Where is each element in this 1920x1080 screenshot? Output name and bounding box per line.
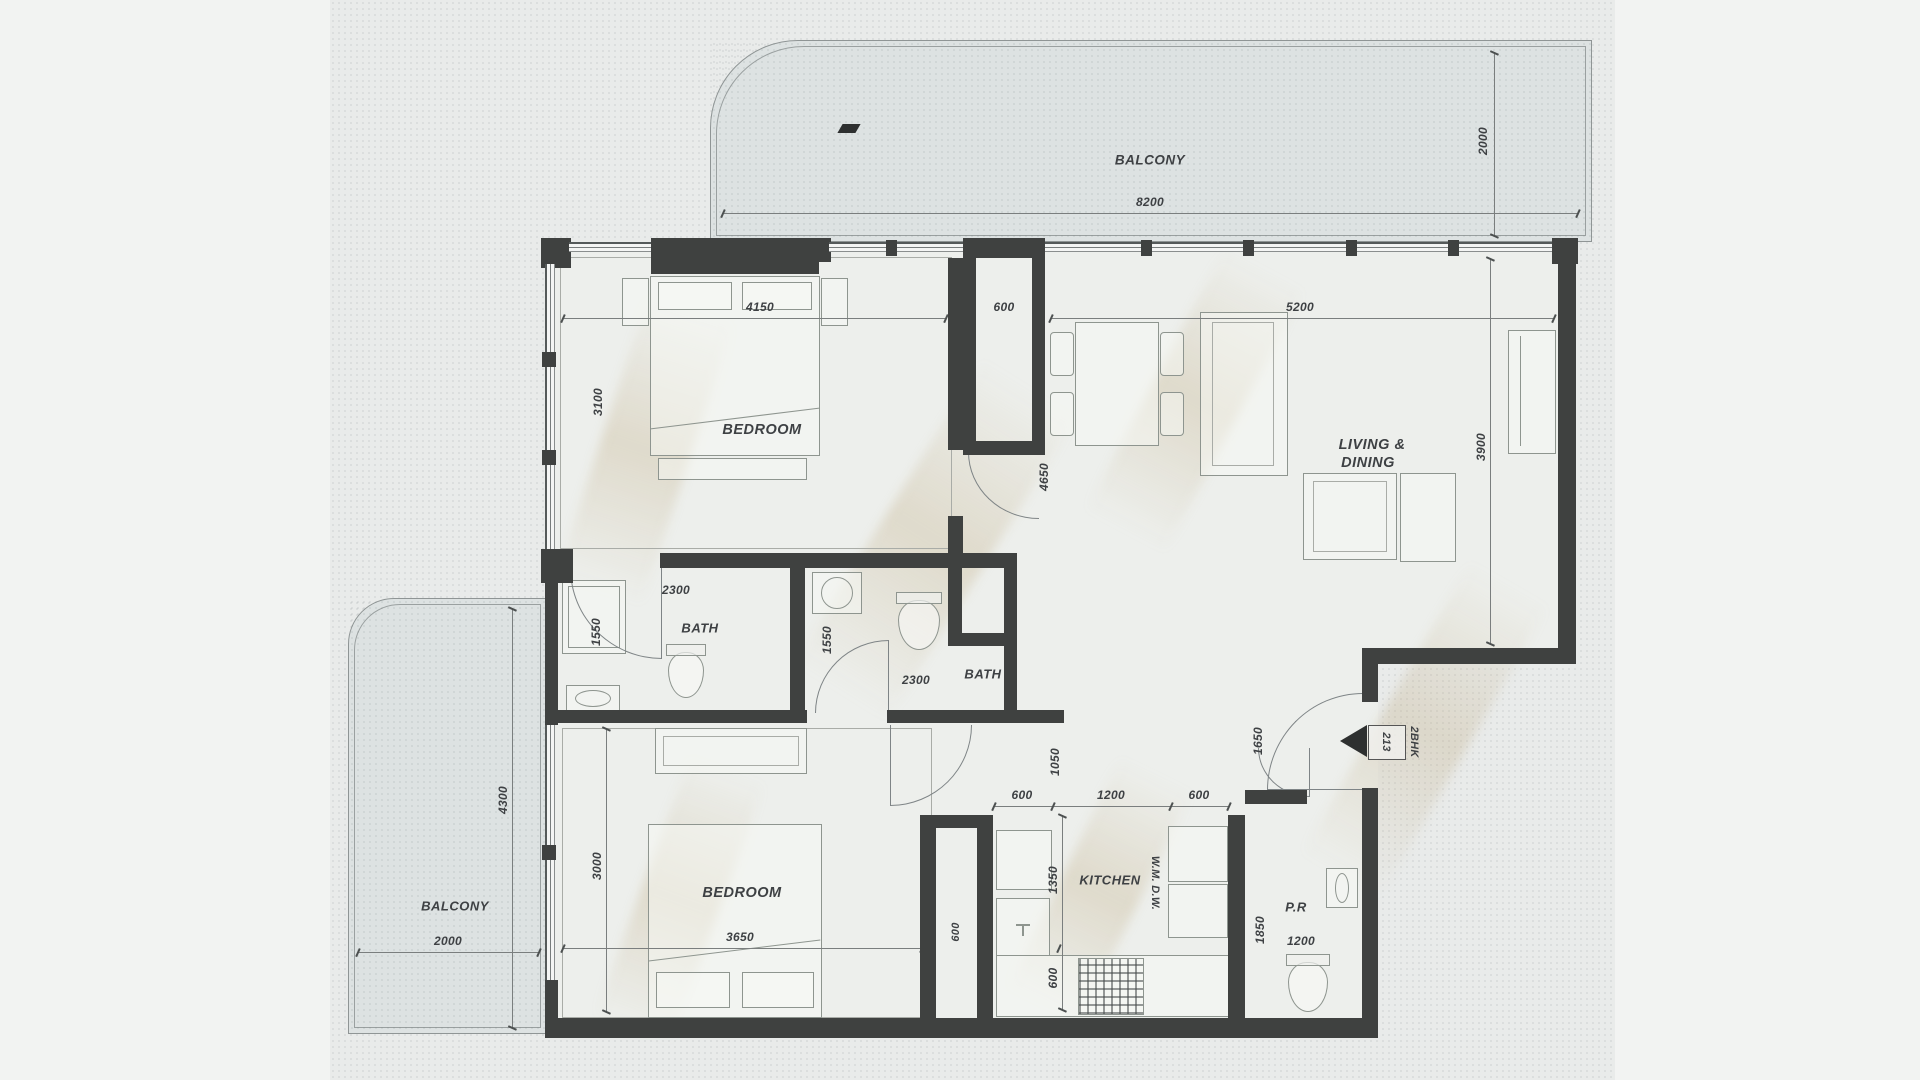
balcony-left-width-dim: 2000 xyxy=(434,934,462,948)
kitchen-hob-dim: 600 xyxy=(1046,968,1060,989)
sofa-cushion-line xyxy=(1212,322,1274,466)
living-depth-dim-line xyxy=(1490,258,1491,644)
kitchen-dim-600-left: 600 xyxy=(1012,788,1033,802)
dining-chair xyxy=(1160,332,1184,376)
kitchen-label: KITCHEN xyxy=(1079,873,1140,888)
balcony-left-length-dim: 4300 xyxy=(496,786,510,814)
wall-bath-left-n-a xyxy=(545,553,570,568)
bedroom-top-dim-line xyxy=(562,318,946,319)
bedroom-bottom-label: BEDROOM xyxy=(702,885,781,901)
dining-chair xyxy=(1050,332,1074,376)
pillow xyxy=(656,972,730,1008)
wall-right-lower-a xyxy=(1362,664,1378,702)
duct-top-wall-s xyxy=(963,441,1045,455)
wall-left-bath xyxy=(545,583,558,725)
wall-bath-mid-n xyxy=(805,553,1017,568)
balcony-left-length-dim-line xyxy=(512,608,513,1028)
wall-bath-mid-stub-h xyxy=(962,633,1017,646)
dining-chair xyxy=(1160,392,1184,436)
wall-bath-mid-stub-v xyxy=(948,568,962,646)
entry-arrow xyxy=(1340,725,1367,757)
wall-bath-mid-s xyxy=(887,710,1017,723)
window-mullion xyxy=(1141,240,1152,256)
pr-sink xyxy=(1326,868,1358,908)
window-mullion xyxy=(542,450,556,465)
duct-top-wall-e xyxy=(1032,258,1045,455)
balcony-top-dim-line xyxy=(722,213,1578,214)
balcony-top xyxy=(710,40,1592,242)
wall-bottom xyxy=(545,1018,1378,1038)
kitchen-dim-600-right: 600 xyxy=(1189,788,1210,802)
pr-label: P.R xyxy=(1285,900,1307,915)
duct-bottom-dim: 600 xyxy=(950,922,962,941)
wardrobe-inner xyxy=(663,736,799,766)
bedroom-top-width-dim: 4150 xyxy=(746,300,774,314)
window-mullion xyxy=(1243,240,1254,256)
wall-bath-left-s xyxy=(545,710,807,723)
unit-number: 213 xyxy=(1380,732,1392,751)
wall-hall-stub xyxy=(1004,710,1064,723)
bedroom-bottom-depth-dim: 3000 xyxy=(590,852,604,880)
pr-width-dim: 1200 xyxy=(1287,934,1315,948)
kitchen-depth-dim: 1350 xyxy=(1046,866,1060,894)
bath-middle-toilet-tank xyxy=(896,592,942,604)
window-bedroom-top-a xyxy=(569,242,653,252)
duct-top-dim: 600 xyxy=(994,300,1015,314)
tv-console xyxy=(1508,330,1556,454)
wall-between-baths xyxy=(790,553,805,723)
bath-left-depth-dim: 1550 xyxy=(589,618,603,646)
window-mullion xyxy=(542,845,556,860)
pr-depth-dim: 1850 xyxy=(1253,916,1267,944)
bath-middle-depth-dim: 1550 xyxy=(820,626,834,654)
balcony-top-width-dim: 8200 xyxy=(1136,195,1164,209)
balcony-left xyxy=(348,598,547,1034)
balcony-top-label: BALCONY xyxy=(1115,153,1185,168)
bed-bench xyxy=(658,458,807,480)
coffee-table-inner xyxy=(1313,481,1387,552)
window-bedroom-top-left xyxy=(545,264,555,551)
pillow xyxy=(742,972,814,1008)
wall-bulkhead-bed xyxy=(651,238,819,274)
pr-toilet-tank xyxy=(1286,954,1330,966)
wall-right-lower-b xyxy=(1362,788,1378,1020)
bedroom-bottom-width-dim: 3650 xyxy=(726,930,754,944)
floor-plan: BALCONY 8200 2000 BALCONY 2000 4300 xyxy=(0,0,1920,1080)
kitchen-cabinet xyxy=(996,830,1052,890)
balcony-left-label: BALCONY xyxy=(421,899,489,914)
duct-bottom-wall-e xyxy=(977,815,993,1020)
wall-bath-left-n-b xyxy=(660,553,805,568)
kitchen-hob xyxy=(1078,958,1144,1015)
wall-kitchen-pr xyxy=(1228,815,1245,1020)
bedroom-bottom-depth-dim-line xyxy=(606,728,607,1012)
living-dining-label-2: DINING xyxy=(1341,455,1395,471)
bath-left-width-dim: 2300 xyxy=(662,583,690,597)
bedroom-top-label: BEDROOM xyxy=(722,422,801,438)
window-mullion xyxy=(1448,240,1459,256)
dining-depth-dim: 4650 xyxy=(1037,463,1051,491)
window-mullion xyxy=(1346,240,1357,256)
window-mullion xyxy=(886,240,897,256)
kitchen-appliance-label: W.M. D.W. xyxy=(1149,856,1161,910)
unit-type: 2BHK xyxy=(1408,726,1420,757)
armchair xyxy=(1400,473,1456,562)
wall-right-upper xyxy=(1558,238,1576,650)
kitchen-dim-1200: 1200 xyxy=(1097,788,1125,802)
wall-bedroom-top-right-a xyxy=(948,258,963,450)
entry-door-dim: 1650 xyxy=(1251,727,1265,755)
kitchen-depth-chain xyxy=(1062,815,1063,1010)
kitchen-dim-chain xyxy=(993,806,1229,807)
bedroom-bottom-dim-line xyxy=(562,948,922,949)
kitchen-sink xyxy=(996,898,1050,956)
window-living-top xyxy=(1045,242,1556,252)
duct-top-wall-n xyxy=(963,238,1045,258)
dining-chair xyxy=(1050,392,1074,436)
bath-middle-sink xyxy=(812,572,862,614)
bedroom-top-depth-dim: 3100 xyxy=(591,388,605,416)
living-dining-label-1: LIVING & xyxy=(1339,437,1406,453)
duct-bottom-wall-w xyxy=(920,815,936,1020)
dining-table xyxy=(1075,322,1159,446)
kitchen-passage-dim: 1050 xyxy=(1048,748,1062,776)
washing-machine xyxy=(1168,826,1228,882)
bath-middle-label: BATH xyxy=(964,667,1001,682)
living-dim-line xyxy=(1050,318,1554,319)
bath-middle-width-dim: 2300 xyxy=(902,673,930,687)
balcony-top-depth-dim-line xyxy=(1494,52,1495,236)
pillow xyxy=(658,282,732,310)
wall-pr-n xyxy=(1245,790,1307,804)
bath-left-sink xyxy=(566,685,620,712)
bath-left-toilet-tank xyxy=(666,644,706,656)
window-dining-top xyxy=(829,242,965,252)
duct-top-wall-w xyxy=(963,258,976,455)
tv-line xyxy=(1520,336,1521,446)
dishwasher xyxy=(1168,884,1228,938)
living-width-dim: 5200 xyxy=(1286,300,1314,314)
living-depth-dim: 3900 xyxy=(1474,433,1488,461)
window-mullion xyxy=(542,352,556,367)
balcony-top-depth-dim: 2000 xyxy=(1476,127,1490,155)
wall-step-right xyxy=(1362,648,1576,664)
bath-left-label: BATH xyxy=(681,621,718,636)
